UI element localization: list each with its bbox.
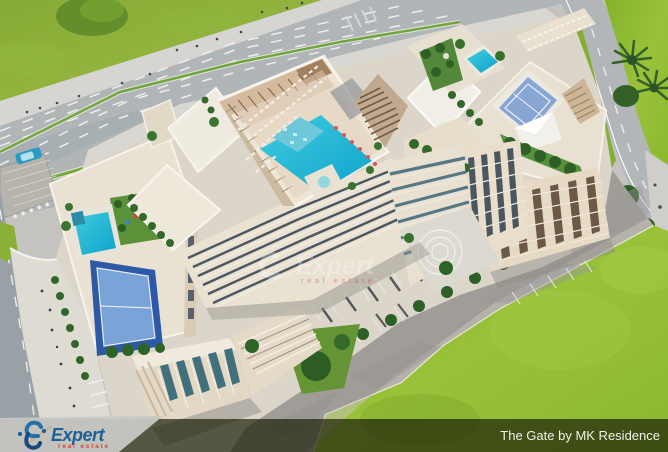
svg-text:real estate: real estate [58, 443, 110, 450]
svg-text:real estate: real estate [301, 276, 376, 285]
svg-text:The Gate by MK Residence: The Gate by MK Residence [500, 428, 660, 443]
svg-text:Expert: Expert [51, 425, 106, 445]
